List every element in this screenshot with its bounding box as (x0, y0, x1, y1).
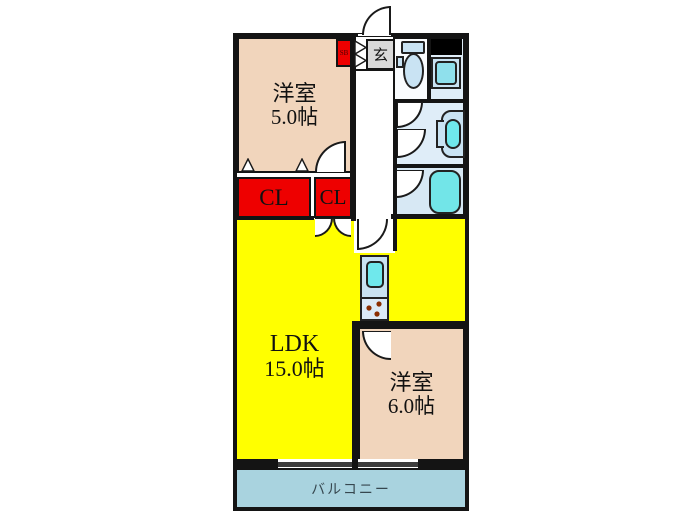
washing-machine-drum (435, 61, 457, 85)
wash-basin-tab (436, 120, 444, 148)
balcony-label: バルコニー (311, 479, 391, 499)
toilet-bowl (403, 53, 424, 89)
wash-basin-bowl (445, 119, 461, 149)
south-wall-right (418, 459, 465, 468)
ldk-floor-upper (237, 219, 465, 326)
washing-machine (431, 57, 461, 89)
floor-plan: 洋室 5.0帖 SB 玄 (233, 33, 469, 511)
pipe-space-duct (431, 39, 462, 55)
entrance-step-line (356, 69, 395, 71)
kitchen-stove (360, 297, 389, 321)
room5-name: 洋室 (272, 82, 316, 106)
bathtub (429, 170, 461, 214)
closet-fold-triangles-icon (241, 158, 309, 172)
utility-area (429, 37, 465, 101)
south-wall-left (237, 459, 278, 468)
wall-below-closet-left (237, 216, 314, 220)
ldk-label: LDK 15.0帖 (257, 332, 332, 380)
entrance-genkan: 玄 (366, 39, 395, 70)
closet-left-label: CL (259, 185, 288, 211)
closet-right: CL (314, 177, 352, 218)
window-room6 (358, 462, 418, 467)
entrance-label: 玄 (373, 44, 388, 65)
room5-size: 5.0帖 (271, 106, 318, 129)
room6-name: 洋室 (389, 371, 433, 395)
shoe-box: SB (336, 39, 352, 67)
toilet-room (393, 37, 429, 101)
ldk-size: 15.0帖 (257, 357, 332, 380)
front-door-arc (362, 6, 391, 35)
window-ldk (278, 462, 352, 467)
closet-left: CL (237, 177, 311, 218)
kitchen-sink-unit (360, 255, 389, 299)
wall-below-bath (391, 214, 465, 219)
stove-burners-icon (362, 299, 387, 319)
kitchen-sink-bowl (366, 261, 384, 288)
shoe-box-label: SB (340, 49, 349, 57)
room6-size: 6.0帖 (388, 395, 435, 418)
closet-right-label: CL (320, 185, 347, 210)
ldk-name: LDK (257, 332, 332, 357)
toilet-side-unit (396, 56, 404, 68)
balcony: バルコニー (237, 468, 465, 507)
